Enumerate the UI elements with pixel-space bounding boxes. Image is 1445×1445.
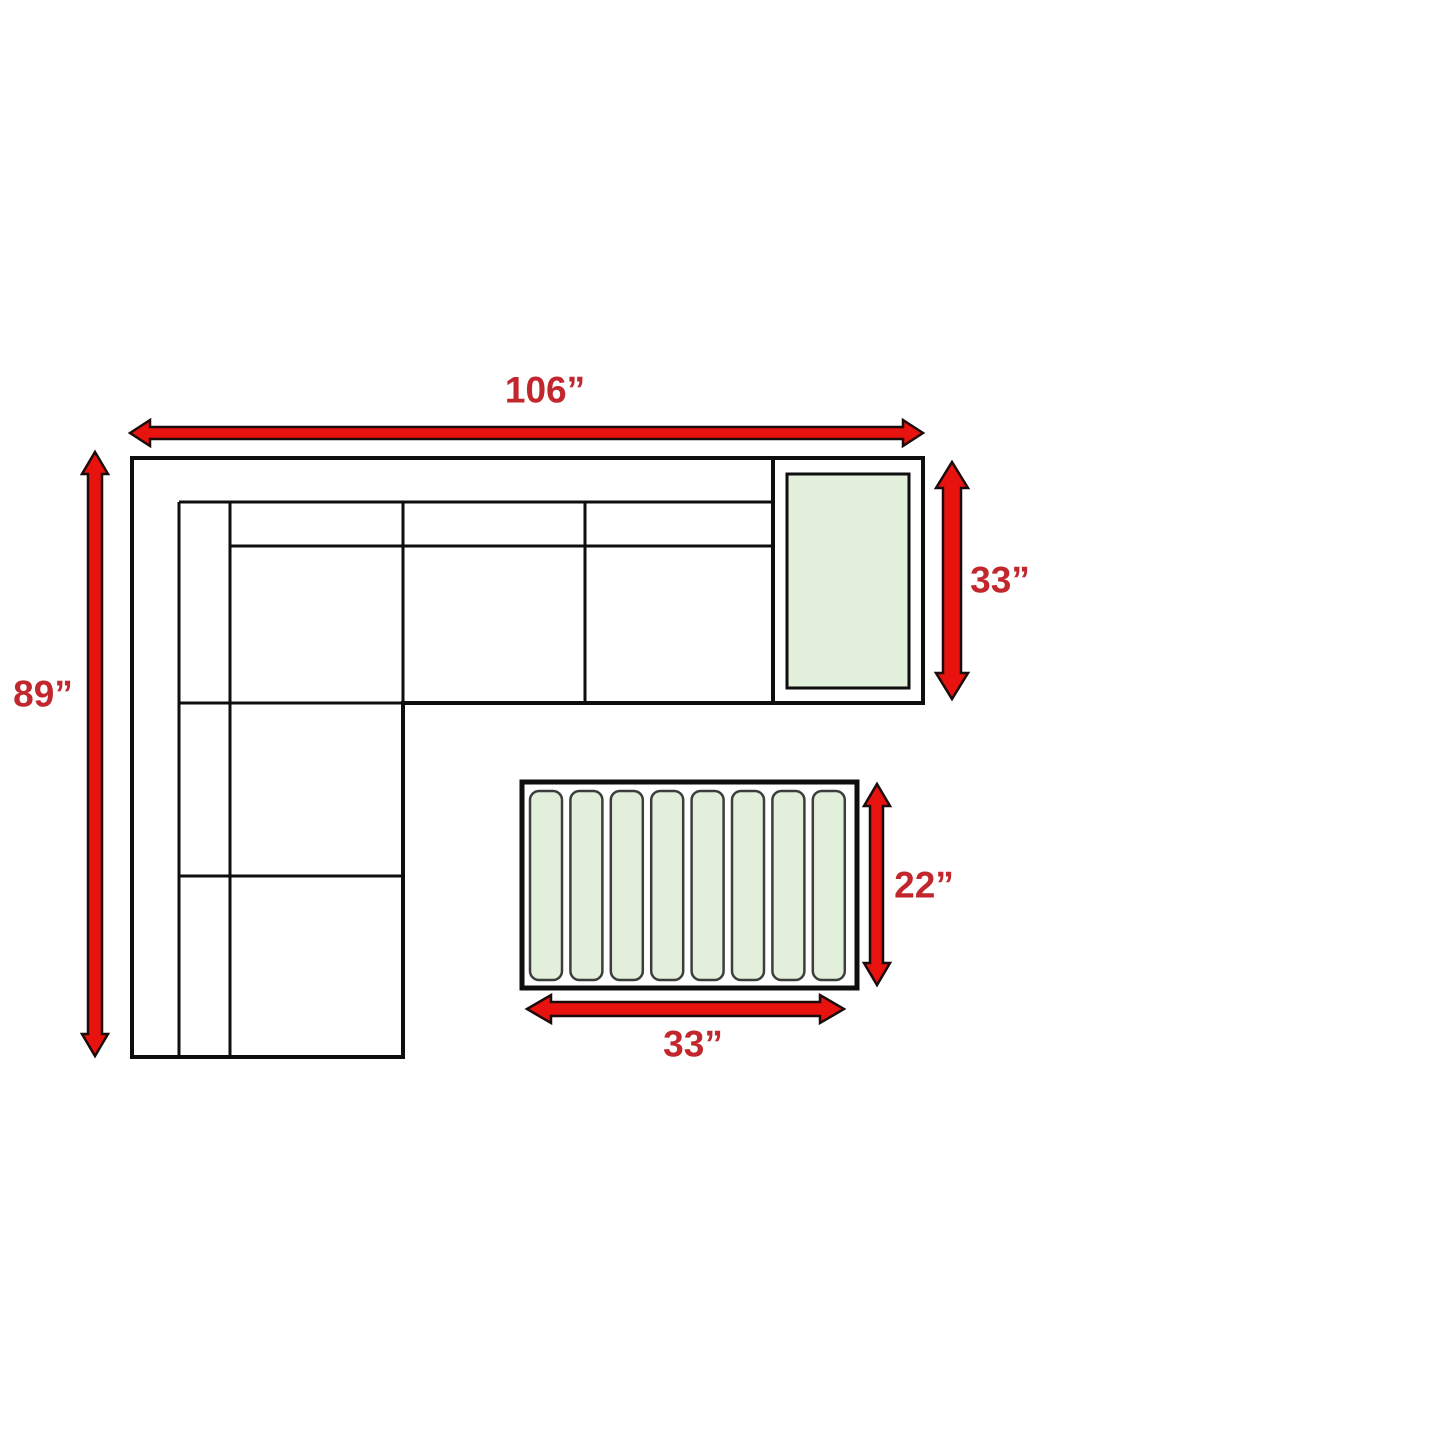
- label-sofa-width: 106”: [505, 372, 585, 409]
- coffee-table-slat: [530, 791, 562, 980]
- dimension-arrow-sofa-depth: [82, 452, 108, 1056]
- coffee-table-slat: [570, 791, 602, 980]
- end-table: [773, 458, 923, 703]
- label-end-table-side: 33”: [970, 562, 1030, 599]
- dimension-arrow-coffee-table-depth: [864, 784, 890, 985]
- coffee-table-slat: [651, 791, 683, 980]
- dimension-arrow-end-table: [936, 462, 968, 699]
- dimension-arrow-coffee-table-width: [527, 995, 844, 1023]
- label-coffee-table-width: 33”: [663, 1026, 723, 1063]
- diagram-canvas: 106” 89” 33” 22” 33”: [0, 0, 1445, 1445]
- sectional-dimension-diagram: [0, 0, 1445, 1445]
- label-sofa-depth: 89”: [13, 676, 73, 713]
- label-coffee-table-depth: 22”: [894, 867, 954, 904]
- coffee-table-slat: [772, 791, 804, 980]
- coffee-table-slat: [611, 791, 643, 980]
- end-table-top: [787, 474, 909, 688]
- coffee-table-slat: [732, 791, 764, 980]
- coffee-table-slat: [813, 791, 845, 980]
- dimension-arrow-sofa-width: [130, 420, 923, 446]
- coffee-table: [522, 782, 857, 988]
- coffee-table-slat: [692, 791, 724, 980]
